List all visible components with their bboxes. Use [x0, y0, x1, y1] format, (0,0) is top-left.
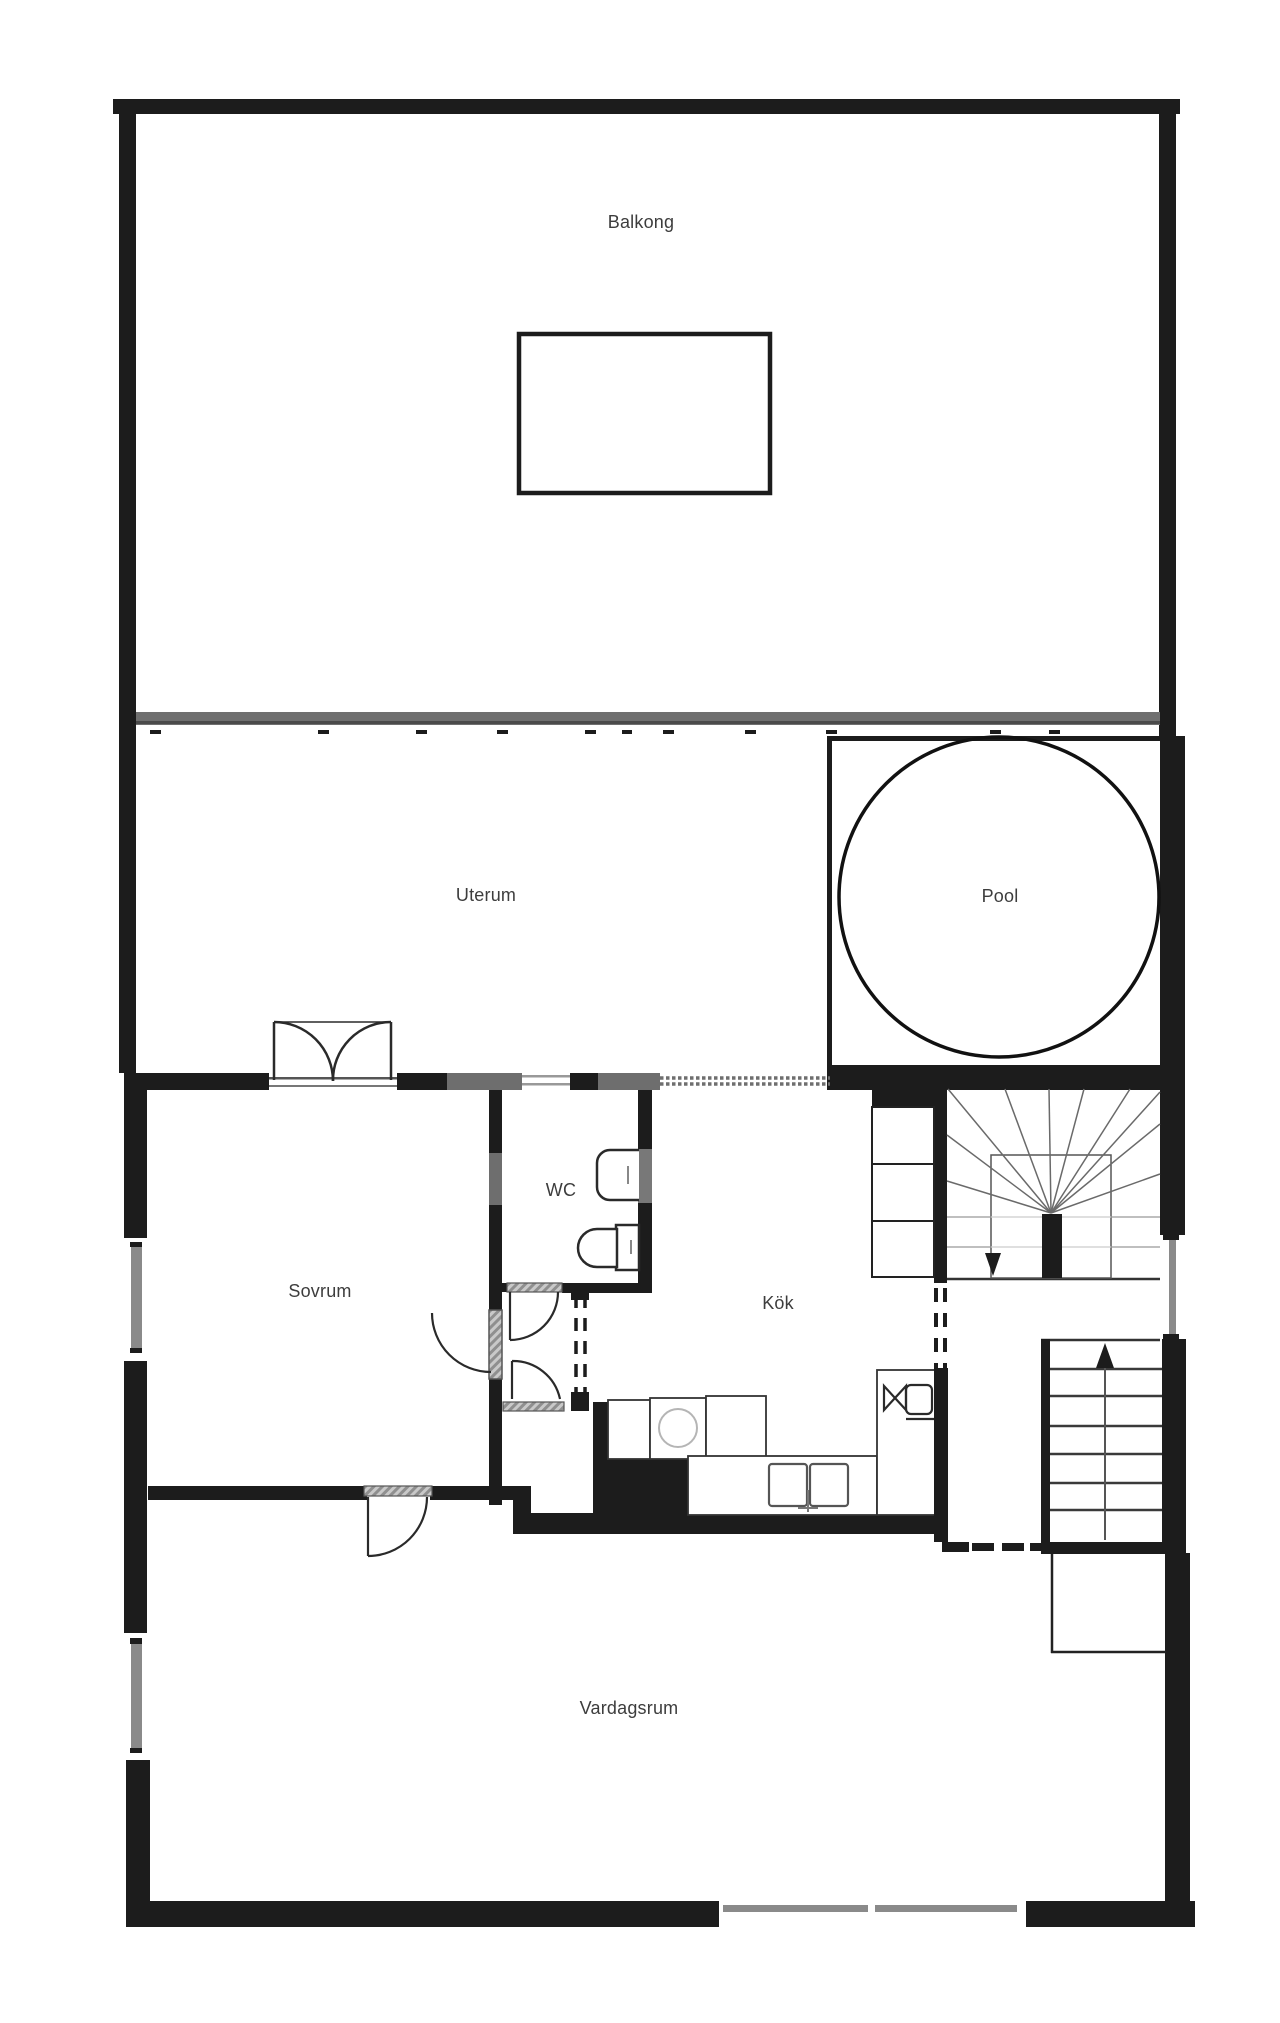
- svg-text:Vardagsrum: Vardagsrum: [580, 1698, 679, 1718]
- svg-text:Uterum: Uterum: [456, 885, 516, 905]
- svg-text:Sovrum: Sovrum: [288, 1281, 351, 1301]
- svg-text:Kök: Kök: [762, 1293, 794, 1313]
- svg-text:WC: WC: [546, 1180, 576, 1200]
- svg-text:Balkong: Balkong: [608, 212, 674, 232]
- svg-text:Pool: Pool: [982, 886, 1019, 906]
